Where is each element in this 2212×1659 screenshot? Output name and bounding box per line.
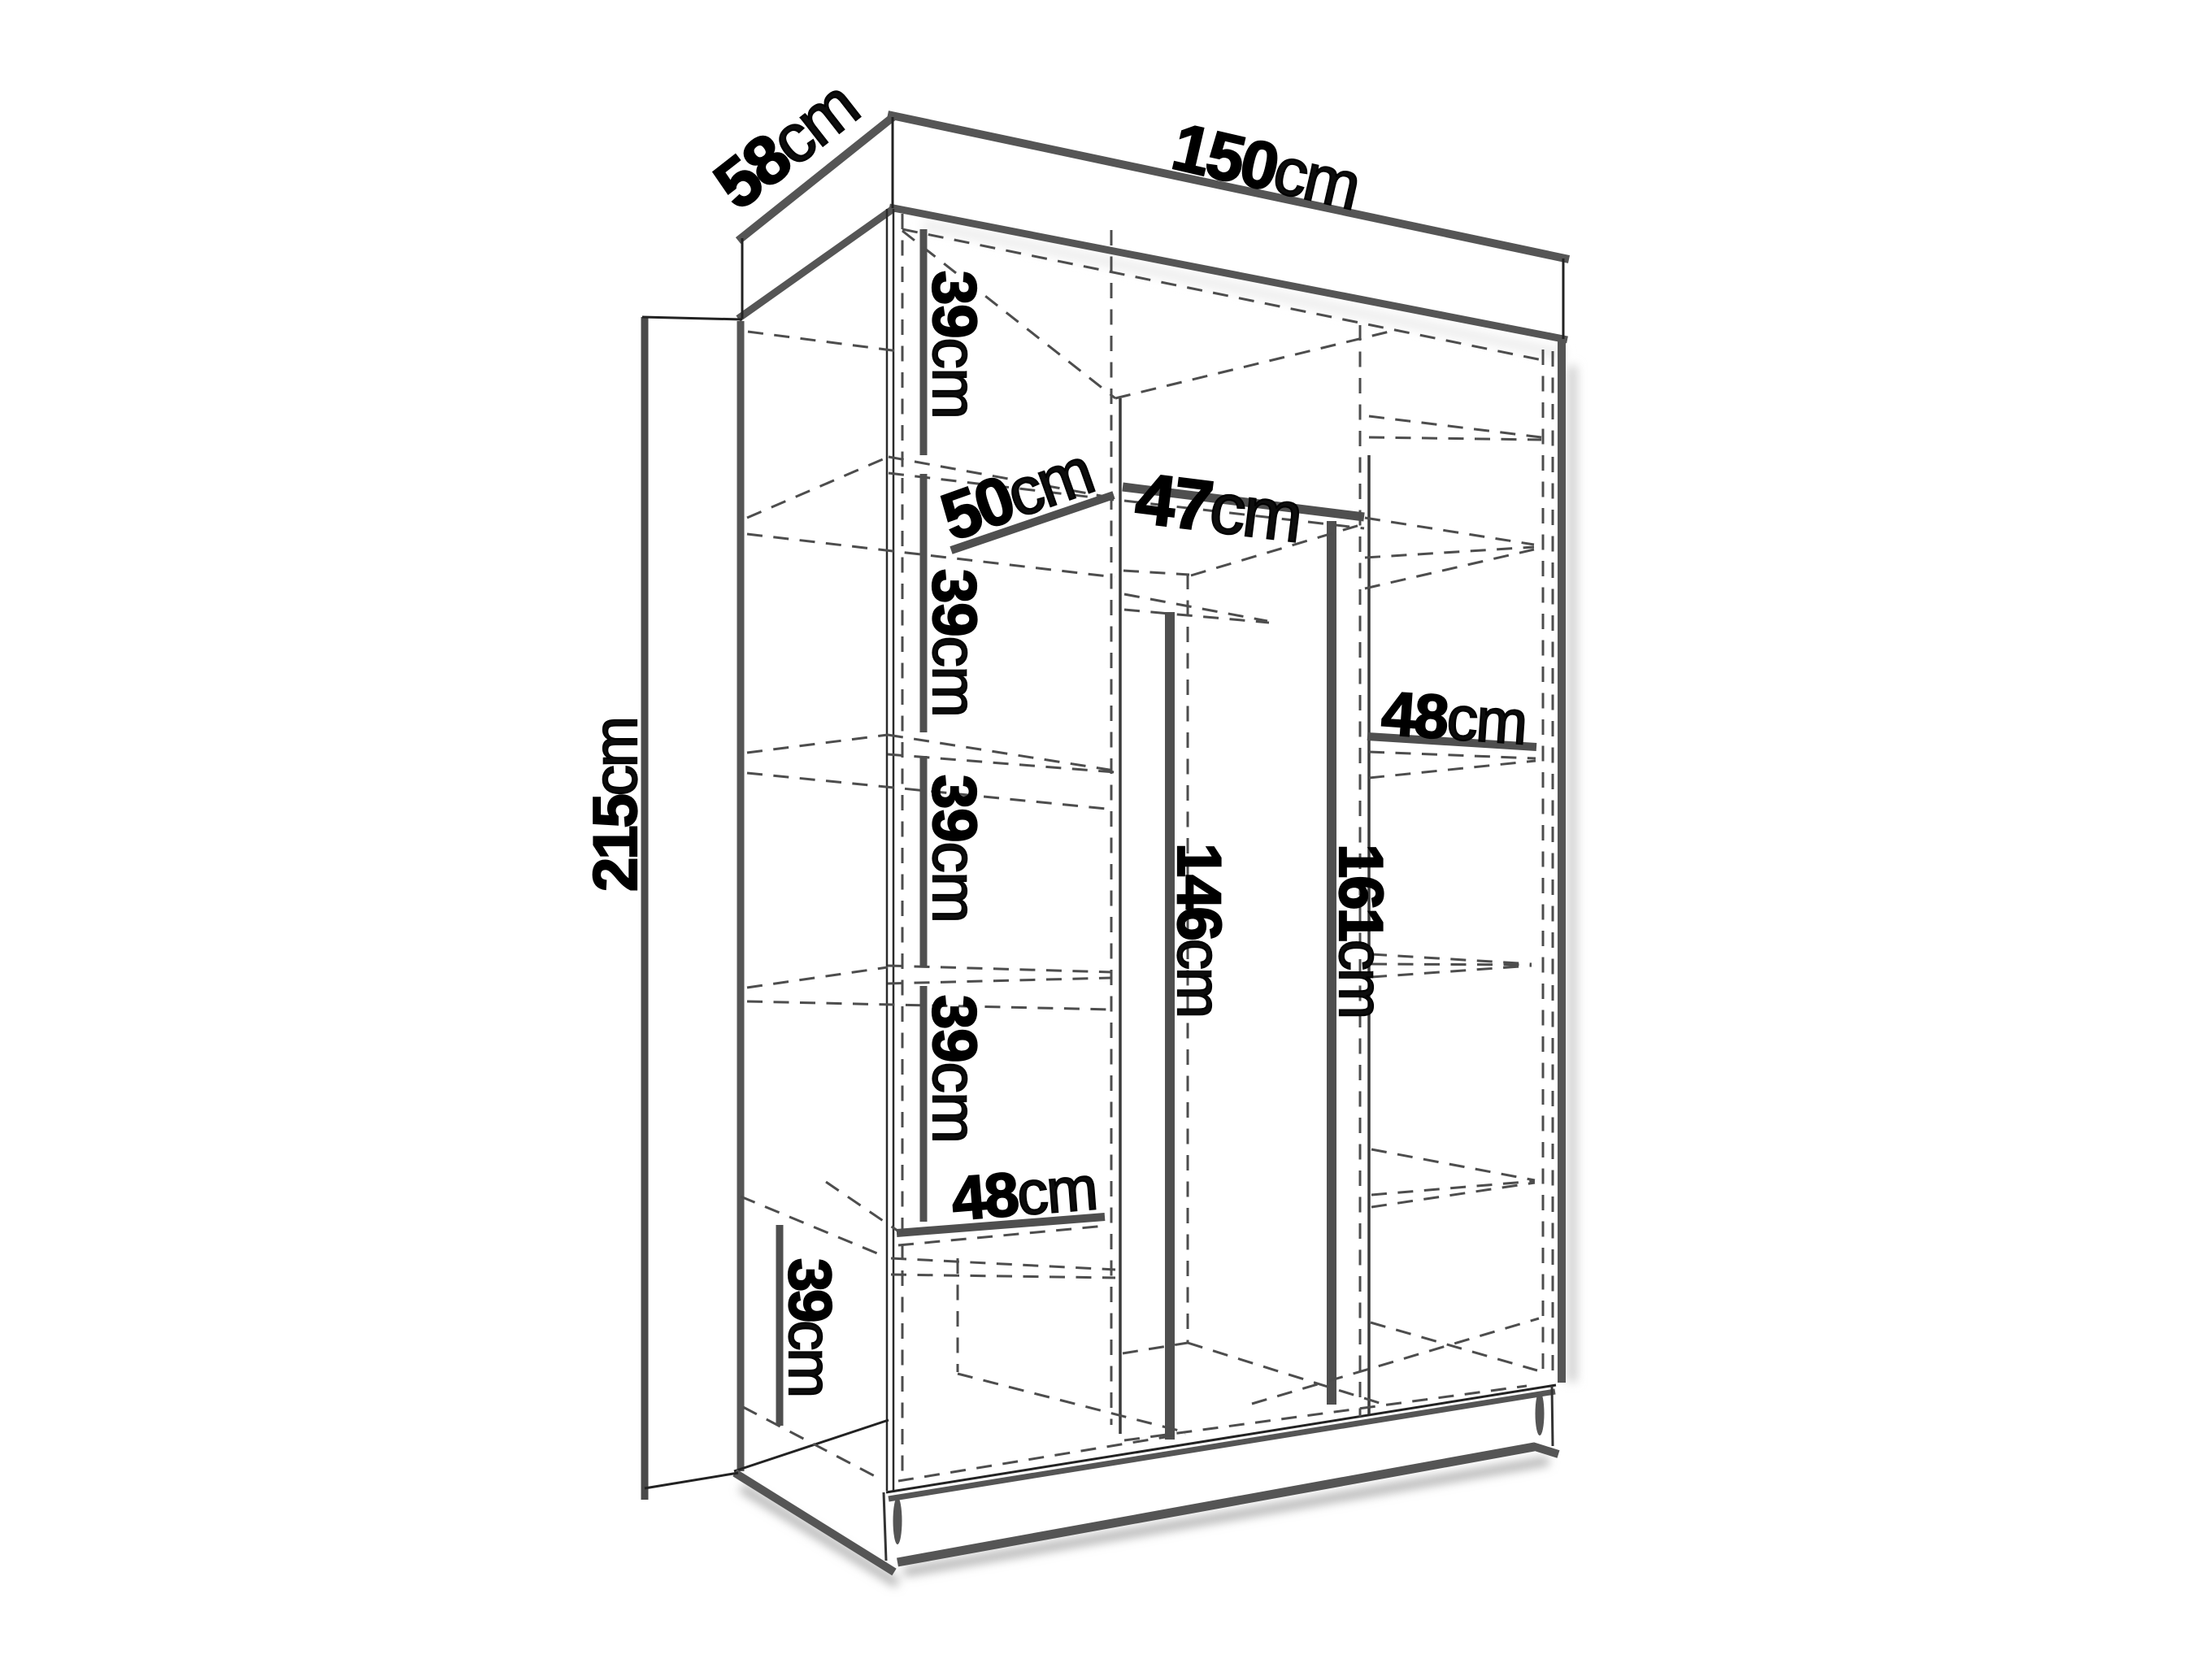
svg-text:39cm: 39cm: [919, 569, 989, 717]
svg-text:161cm: 161cm: [1326, 844, 1395, 1017]
svg-text:39cm: 39cm: [776, 1258, 844, 1396]
svg-text:48cm: 48cm: [1380, 679, 1528, 758]
svg-text:215cm: 215cm: [581, 719, 650, 892]
svg-text:39cm: 39cm: [919, 995, 989, 1143]
svg-text:39cm: 39cm: [919, 775, 989, 923]
svg-text:39cm: 39cm: [919, 271, 989, 419]
svg-text:146cm: 146cm: [1164, 843, 1233, 1016]
svg-text:48cm: 48cm: [950, 1153, 1099, 1234]
